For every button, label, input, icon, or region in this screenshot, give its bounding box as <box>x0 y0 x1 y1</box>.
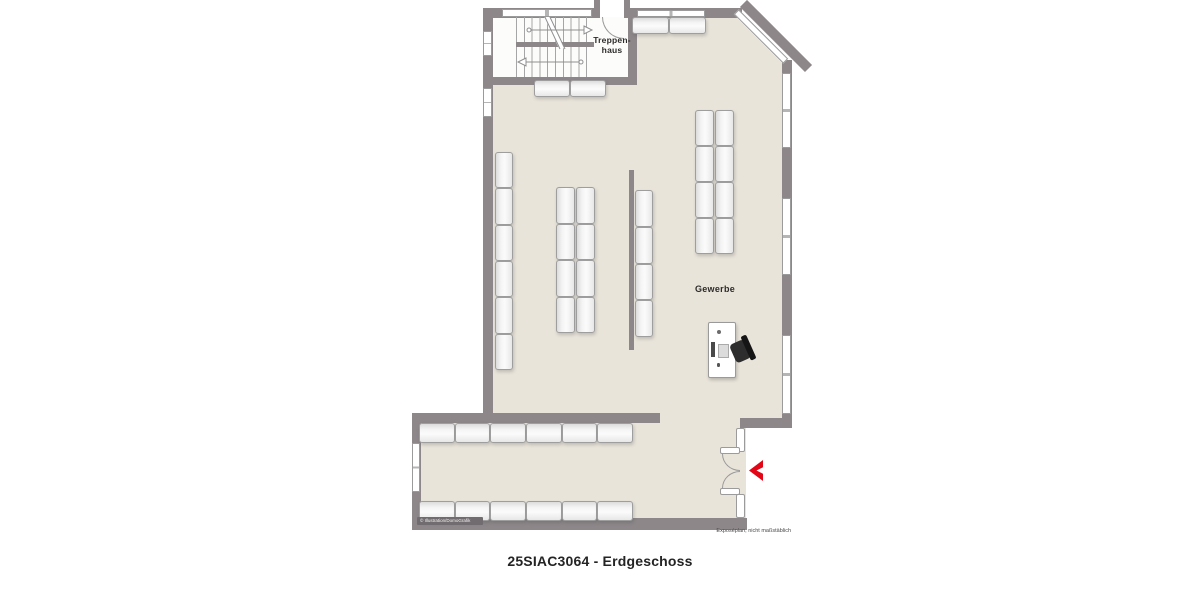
shelf-row-below-stairwell-segment <box>534 80 570 97</box>
shelf-column-middle-right-segment <box>576 187 595 224</box>
wall-left <box>483 8 493 418</box>
window-top-stairwell <box>502 9 592 17</box>
entrance-arrow-icon <box>747 460 764 481</box>
shelf-column-right-left-segment <box>695 110 714 146</box>
mouse <box>717 363 720 367</box>
shelf-column-partition-segment <box>635 227 653 264</box>
shelf-column-middle-left-segment <box>556 297 575 334</box>
wall-step-bottom-right <box>740 418 792 428</box>
shelf-column-left-wall-segment <box>495 225 513 261</box>
shelf-column-left-wall-segment <box>495 334 513 370</box>
shelf-column-middle-right-segment <box>576 297 595 334</box>
shelf-column-left-wall-segment <box>495 261 513 297</box>
wall-partition-thin-vertical <box>629 170 634 350</box>
shelf-row-aisle-top-segment <box>455 423 491 443</box>
window-top-right <box>637 10 705 17</box>
shelf-column-middle-right-segment <box>576 224 595 261</box>
window-right-1 <box>782 73 791 148</box>
shelf-row-aisle-top-segment <box>562 423 598 443</box>
wall-vestibule-stub-left <box>594 0 600 9</box>
shelf-column-right-right-segment <box>715 110 734 146</box>
shelf-row-below-stairwell-segment <box>570 80 606 97</box>
shelf-row-aisle-bottom-segment <box>597 501 633 521</box>
entrance-door-leaf-upper[interactable] <box>720 447 740 454</box>
window-left-lower <box>483 88 492 117</box>
shelf-row-aisle-top-segment <box>490 423 526 443</box>
watermark-badge: © Illustration/DomoGrafik <box>417 517 483 525</box>
main-room-floor-right <box>738 64 782 418</box>
shelf-column-middle-left-segment <box>556 260 575 297</box>
window-right-3 <box>782 335 791 414</box>
shelf-column-partition-segment <box>635 264 653 301</box>
window-right-2 <box>782 198 791 275</box>
shelf-row-aisle-bottom-segment <box>490 501 526 521</box>
desk-lamp <box>717 330 721 334</box>
entrance-door-leaf-lower[interactable] <box>720 488 740 495</box>
plan-title: 25SIAC3064 - Erdgeschoss <box>0 553 1200 569</box>
shelf-column-middle-right-segment <box>576 260 595 297</box>
shelf-row-aisle-top-segment <box>526 423 562 443</box>
shelf-column-right-left-segment <box>695 218 714 254</box>
shelf-column-right-right-segment <box>715 146 734 182</box>
shelf-column-right-left-segment <box>695 146 714 182</box>
room-label-stairwell: Treppen- haus <box>583 36 641 55</box>
shelf-column-middle-left-segment <box>556 187 575 224</box>
window-left-upper <box>483 31 492 56</box>
shelf-column-right-right-segment <box>715 182 734 218</box>
shelf-column-partition-segment <box>635 190 653 227</box>
shelf-column-middle-left-segment <box>556 224 575 261</box>
shelf-column-left-wall-segment <box>495 152 513 188</box>
keyboard <box>718 344 729 358</box>
stairwell-label-line2: haus <box>583 46 641 56</box>
shelf-row-aisle-top-segment <box>419 423 455 443</box>
shelf-row-top-wall-segment <box>669 17 706 34</box>
shelf-column-right-left-segment <box>695 182 714 218</box>
scale-footnote: Exposéplan, nicht maßstäblich <box>716 528 791 534</box>
shelf-row-top-wall-segment <box>632 17 669 34</box>
shelf-column-right-right-segment <box>715 218 734 254</box>
shelf-column-left-wall-segment <box>495 297 513 333</box>
room-label-commercial: Gewerbe <box>690 284 740 294</box>
wall-partition-horizontal <box>412 413 660 423</box>
shelf-column-partition-segment <box>635 300 653 337</box>
floor-plan-page: Treppen- haus Gewerbe © Illustration/Dom… <box>0 0 1200 600</box>
window-extension-left <box>412 443 420 492</box>
shelf-row-aisle-top-segment <box>597 423 633 443</box>
entrance-jamb-lower <box>736 494 745 518</box>
shelf-column-left-wall-segment <box>495 188 513 224</box>
monitor <box>711 342 715 357</box>
shelf-row-aisle-bottom-segment <box>562 501 598 521</box>
shelf-row-aisle-bottom-segment <box>526 501 562 521</box>
